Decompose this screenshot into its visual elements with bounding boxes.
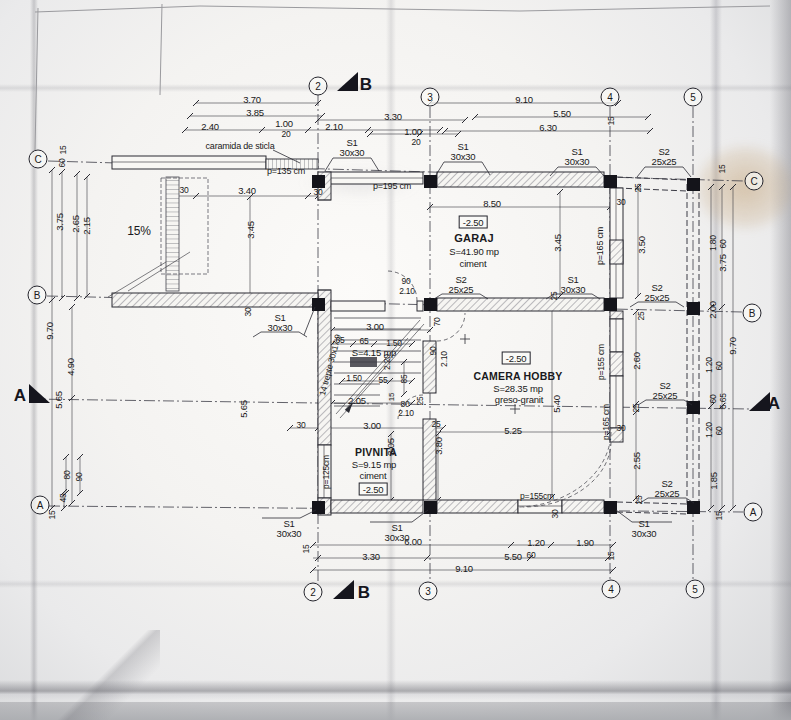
dim-label: 5.25: [504, 425, 522, 436]
grid-bubble-3-bottom: 3: [419, 582, 438, 601]
dim-label: 15: [58, 145, 68, 154]
parapet-label: p=165 cm: [595, 227, 605, 265]
dim-label: 3.75: [54, 213, 65, 231]
dim-label: 2.15: [81, 217, 92, 235]
dim-label: 3.80: [433, 437, 444, 455]
dim-label: 25: [636, 311, 646, 320]
dim-label: 30: [179, 185, 188, 195]
column-label: 30x30: [451, 151, 476, 162]
grid-bubble-C-left: C: [29, 150, 48, 169]
section-letter-a: A: [14, 386, 26, 406]
parapet-label: p=135 cm: [267, 166, 305, 176]
dim-label: 2.10: [439, 351, 449, 367]
dim-label: 2.65: [70, 215, 81, 233]
column-label: 30x30: [632, 528, 657, 539]
dim-label: 30: [296, 420, 305, 430]
column-label: 30x30: [268, 322, 293, 333]
grid-bubble-4-top: 4: [601, 88, 620, 107]
dim-label: 60: [714, 361, 724, 370]
dim-label: 3.70: [243, 94, 261, 105]
parapet-label: p=195 cm: [373, 181, 411, 191]
finish-label: ciment: [460, 258, 487, 269]
dim-label: 15: [387, 393, 396, 402]
dim-label: 1.20: [704, 357, 714, 373]
scanned-floor-plan: 3.703.852.401.00202.103.301.00209.105.50…: [0, 0, 791, 720]
dim-label: 15: [606, 116, 616, 125]
dim-label: 15: [47, 510, 57, 519]
dim-label: 15: [714, 511, 724, 520]
dim-label: 2.10: [399, 286, 415, 296]
dim-label: 85: [399, 374, 409, 383]
dim-label: 3.00: [366, 321, 384, 332]
finish-label: ciment: [360, 470, 387, 481]
parapet-label: p=165 cm: [601, 404, 611, 440]
area-label: S=41.90 mp: [449, 246, 499, 257]
grid-bubble-2-top: 2: [309, 77, 328, 96]
section-letter-b: B: [360, 75, 372, 95]
dim-label: 3.00: [363, 420, 381, 431]
dim-label: 2.40: [201, 121, 219, 132]
dim-label: 1.00: [404, 126, 422, 137]
dim-label: 60: [708, 394, 718, 403]
level-badge: -2.50: [459, 216, 488, 229]
column-label: 30x30: [277, 528, 302, 539]
dim-label: 9.10: [515, 94, 533, 105]
grid-bubble-A-right: A: [744, 503, 763, 522]
dim-label: 2.20: [382, 354, 392, 370]
dim-label: 2.00: [707, 301, 718, 319]
column-label: 30x30: [565, 156, 590, 167]
column-label: 25x25: [645, 292, 670, 303]
dim-label: 20: [281, 129, 290, 139]
dim-label: 25: [549, 291, 559, 300]
dim-label: 5.65: [718, 393, 728, 409]
dim-label: 30: [313, 187, 322, 197]
dim-label: 3.85: [246, 107, 264, 118]
dim-label: 2.10: [398, 408, 414, 418]
dim-label: 1.85: [708, 472, 719, 490]
dim-label: 8.50: [483, 198, 501, 209]
grid-bubble-5-top: 5: [684, 88, 703, 107]
dim-label: 5.50: [553, 108, 571, 119]
dim-label: 1.90: [576, 537, 594, 548]
dim-label: 5.50: [504, 551, 522, 562]
dim-label: 80: [62, 470, 72, 479]
dim-label: 25: [431, 419, 440, 429]
dim-label: 15: [717, 164, 727, 173]
room-name-garaj: GARAJ: [454, 232, 494, 244]
column-label: 25x25: [449, 284, 474, 295]
grid-bubble-C-right: C: [745, 172, 764, 191]
dim-label: 15: [301, 544, 311, 553]
section-letter-b: B: [358, 583, 370, 603]
parapet-label: p=155cm: [520, 491, 554, 501]
dim-label: 6.00: [404, 536, 422, 547]
dim-label: 3.50: [636, 236, 647, 254]
dim-label: 60: [57, 158, 67, 167]
dim-label: 70: [432, 317, 442, 326]
column-label: 25x25: [653, 390, 678, 401]
dim-label: 25: [634, 495, 644, 504]
grid-bubble-B-left: B: [28, 286, 47, 305]
ramp-slope-label: 15%: [127, 224, 150, 238]
column-label: 30x30: [340, 147, 365, 158]
dim-label: 15: [606, 551, 616, 560]
room-name-pivnita: PIVNITA: [355, 446, 397, 458]
dim-label: 6.30: [539, 122, 557, 133]
dim-label: 4.90: [65, 358, 76, 376]
dim-label: 30: [616, 423, 625, 433]
dim-label: 65: [359, 336, 368, 346]
room-name-camera-hobby: CAMERA HOBBY: [474, 370, 563, 382]
dim-label: 1.00: [275, 118, 293, 129]
walls: [112, 156, 699, 515]
grid-bubble-5-bottom: 5: [686, 580, 705, 599]
dim-label: 3.75: [717, 254, 728, 272]
dim-label: 90: [74, 472, 84, 481]
dim-label: 2.55: [631, 452, 642, 470]
dim-label: 2.10: [325, 121, 343, 132]
area-label: S=9.15 mp: [352, 459, 396, 470]
column-label: 25x25: [652, 156, 677, 167]
grid-bubble-3-top: 3: [421, 88, 440, 107]
finish-label: greso-granit: [495, 394, 543, 405]
material-note: caramida de sticla: [206, 141, 275, 151]
dim-label: 30: [550, 509, 560, 518]
dim-label: 9.70: [727, 337, 738, 355]
dim-label: 60: [718, 239, 728, 248]
dim-label: 1.50: [346, 373, 362, 383]
dim-label: 90: [401, 276, 410, 286]
dim-label: 20: [411, 137, 420, 147]
dim-label: 25: [415, 396, 425, 405]
grid-bubble-B-right: B: [743, 304, 762, 323]
dim-label: 5.65: [238, 400, 249, 418]
column-label: 30x30: [561, 284, 586, 295]
parapet-label: p=125cm: [321, 455, 331, 489]
dim-label: 25: [631, 403, 641, 412]
dim-label: 1.20: [704, 422, 714, 438]
dim-label: 30: [243, 307, 253, 316]
parapet-label: p=155 cm: [596, 344, 606, 380]
dim-label: 1.20: [527, 537, 545, 548]
area-label: S=28.35 mp: [493, 383, 543, 394]
dim-label: 3.40: [238, 185, 256, 196]
dim-label: 45: [58, 493, 68, 502]
dim-label: 55: [378, 375, 387, 385]
dim-label: 9.70: [44, 322, 55, 340]
dim-label: 5.40: [551, 395, 562, 413]
dim-label: 5.65: [53, 391, 64, 409]
dim-label: 9.10: [455, 563, 473, 574]
column-label: 25x25: [655, 488, 680, 499]
dim-label: 3.30: [384, 111, 402, 122]
grid-bubble-A-left: A: [31, 496, 50, 515]
dim-label: 30: [616, 197, 625, 207]
dim-label: 2.05: [348, 395, 366, 406]
grid-bubble-2-bottom: 2: [304, 583, 323, 602]
dim-label: 1.80: [708, 235, 718, 251]
dim-label: 60: [526, 550, 535, 560]
grid-bubble-4-bottom: 4: [602, 580, 621, 599]
section-letter-a: A: [768, 394, 780, 414]
plan-linework: [0, 0, 791, 720]
dim-label: 3.30: [362, 551, 380, 562]
dim-label: 3.45: [552, 234, 563, 252]
dim-label: 60: [714, 426, 724, 435]
dim-label: 2.60: [631, 352, 642, 370]
paper-edge-lines: [35, 4, 770, 150]
level-badge: -2.50: [502, 352, 531, 365]
dim-label: 3.45: [245, 221, 256, 239]
level-badge: -2.50: [359, 483, 388, 496]
ramp: [108, 177, 208, 297]
dim-label: 25: [633, 183, 643, 192]
dim-label: 90: [428, 346, 438, 355]
